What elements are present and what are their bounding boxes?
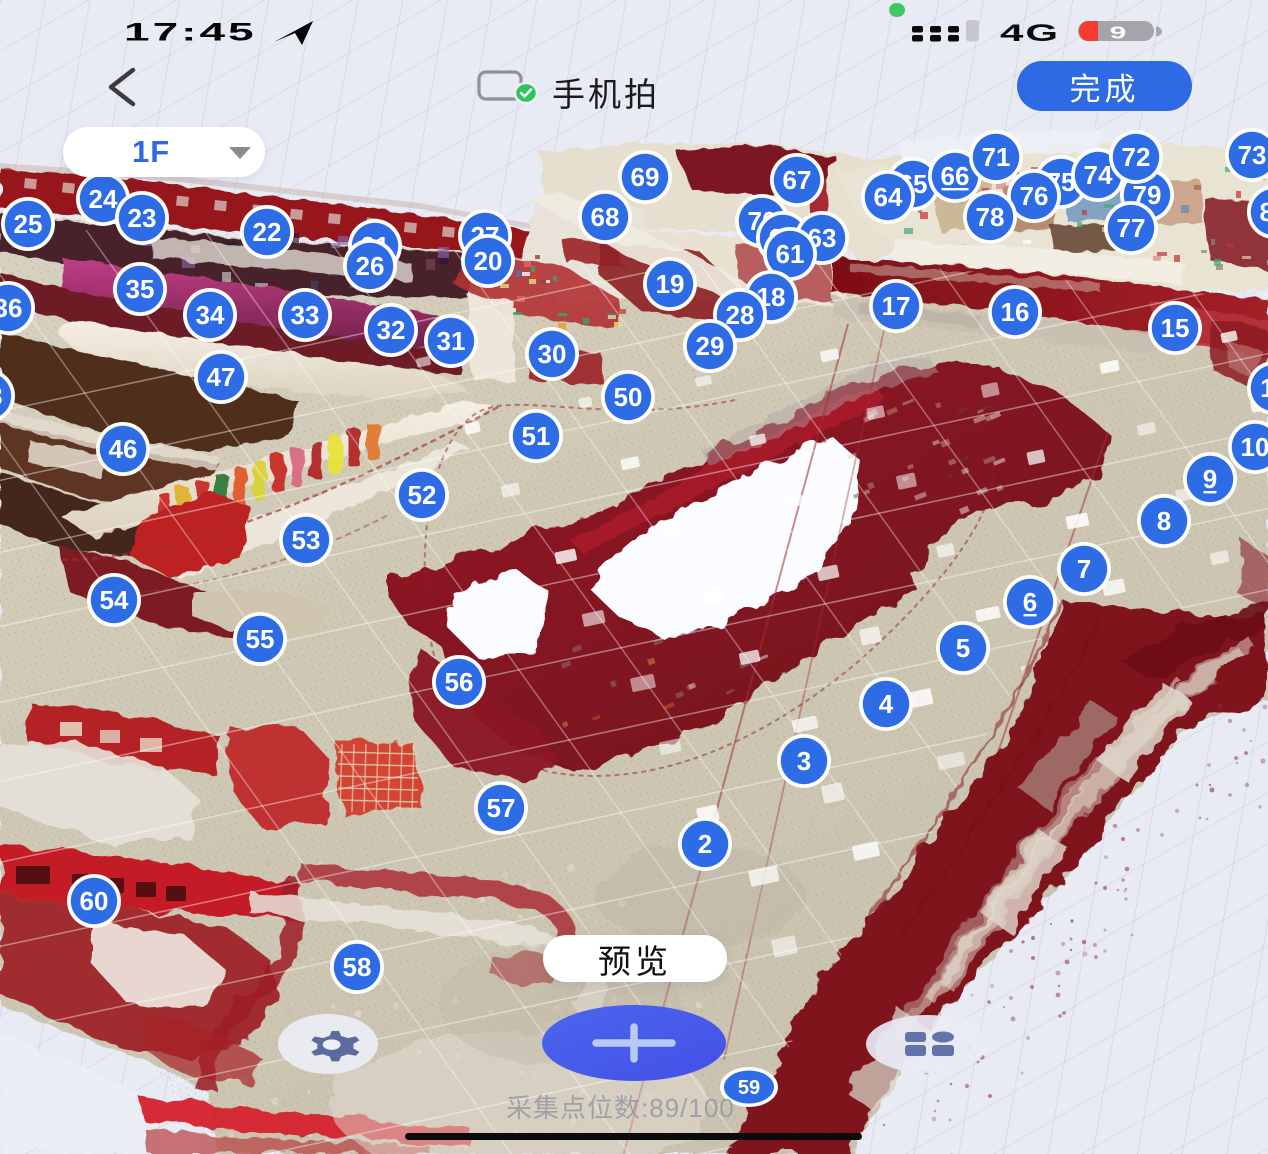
- svg-text:35: 35: [126, 274, 155, 304]
- svg-text:36: 36: [0, 293, 22, 323]
- svg-text:64: 64: [874, 182, 903, 212]
- svg-text:11: 11: [1260, 373, 1268, 403]
- svg-text:30: 30: [538, 339, 567, 369]
- svg-text:53: 53: [292, 525, 321, 555]
- svg-text:67: 67: [783, 165, 812, 195]
- svg-text:71: 71: [982, 142, 1011, 172]
- svg-text:76: 76: [1020, 181, 1049, 211]
- svg-text:16: 16: [1001, 297, 1030, 327]
- svg-text:60: 60: [80, 886, 109, 916]
- svg-text:31: 31: [437, 326, 466, 356]
- svg-text:48: 48: [0, 381, 2, 411]
- svg-text:56: 56: [445, 667, 474, 697]
- svg-text:29: 29: [696, 331, 725, 361]
- svg-text:32: 32: [377, 315, 406, 345]
- svg-text:23: 23: [128, 203, 157, 233]
- svg-text:7: 7: [1077, 554, 1091, 584]
- svg-text:68: 68: [591, 202, 620, 232]
- svg-text:59: 59: [738, 1077, 760, 1099]
- svg-text:2: 2: [698, 829, 712, 859]
- svg-text:58: 58: [343, 952, 372, 982]
- svg-text:33: 33: [291, 300, 320, 330]
- svg-text:34: 34: [196, 300, 225, 330]
- svg-text:22: 22: [253, 217, 282, 247]
- svg-text:26: 26: [356, 251, 385, 281]
- svg-text:73: 73: [1238, 140, 1267, 170]
- svg-text:55: 55: [246, 624, 275, 654]
- svg-text:50: 50: [614, 382, 643, 412]
- svg-text:52: 52: [408, 480, 437, 510]
- svg-text:3: 3: [797, 746, 811, 776]
- svg-text:46: 46: [109, 434, 138, 464]
- svg-text:77: 77: [1117, 213, 1146, 243]
- svg-text:17:45: 17:45: [124, 18, 257, 47]
- svg-text:19: 19: [656, 269, 685, 299]
- svg-text:61: 61: [776, 239, 805, 269]
- svg-text:4: 4: [879, 689, 894, 719]
- svg-text:57: 57: [487, 793, 516, 823]
- svg-text:24: 24: [89, 184, 118, 214]
- svg-text:6: 6: [1023, 587, 1037, 617]
- svg-text:78: 78: [976, 202, 1005, 232]
- svg-text:10: 10: [1241, 432, 1268, 462]
- svg-text:80: 80: [1260, 197, 1268, 227]
- svg-text:54: 54: [100, 585, 129, 615]
- svg-text:20: 20: [474, 246, 503, 276]
- svg-text:47: 47: [207, 362, 236, 392]
- svg-text:69: 69: [631, 162, 660, 192]
- svg-text:74: 74: [1084, 160, 1113, 190]
- svg-text:5: 5: [956, 633, 970, 663]
- svg-text:9: 9: [1203, 464, 1217, 494]
- svg-text:4G: 4G: [1000, 20, 1060, 47]
- svg-text:66: 66: [941, 161, 970, 191]
- svg-text:72: 72: [1122, 142, 1151, 172]
- svg-text:15: 15: [1161, 313, 1190, 343]
- svg-text:25: 25: [14, 209, 43, 239]
- svg-text:9: 9: [1110, 23, 1127, 43]
- svg-text:51: 51: [522, 421, 551, 451]
- svg-text:28: 28: [726, 300, 755, 330]
- svg-text:17: 17: [882, 291, 911, 321]
- svg-text:8: 8: [1157, 506, 1171, 536]
